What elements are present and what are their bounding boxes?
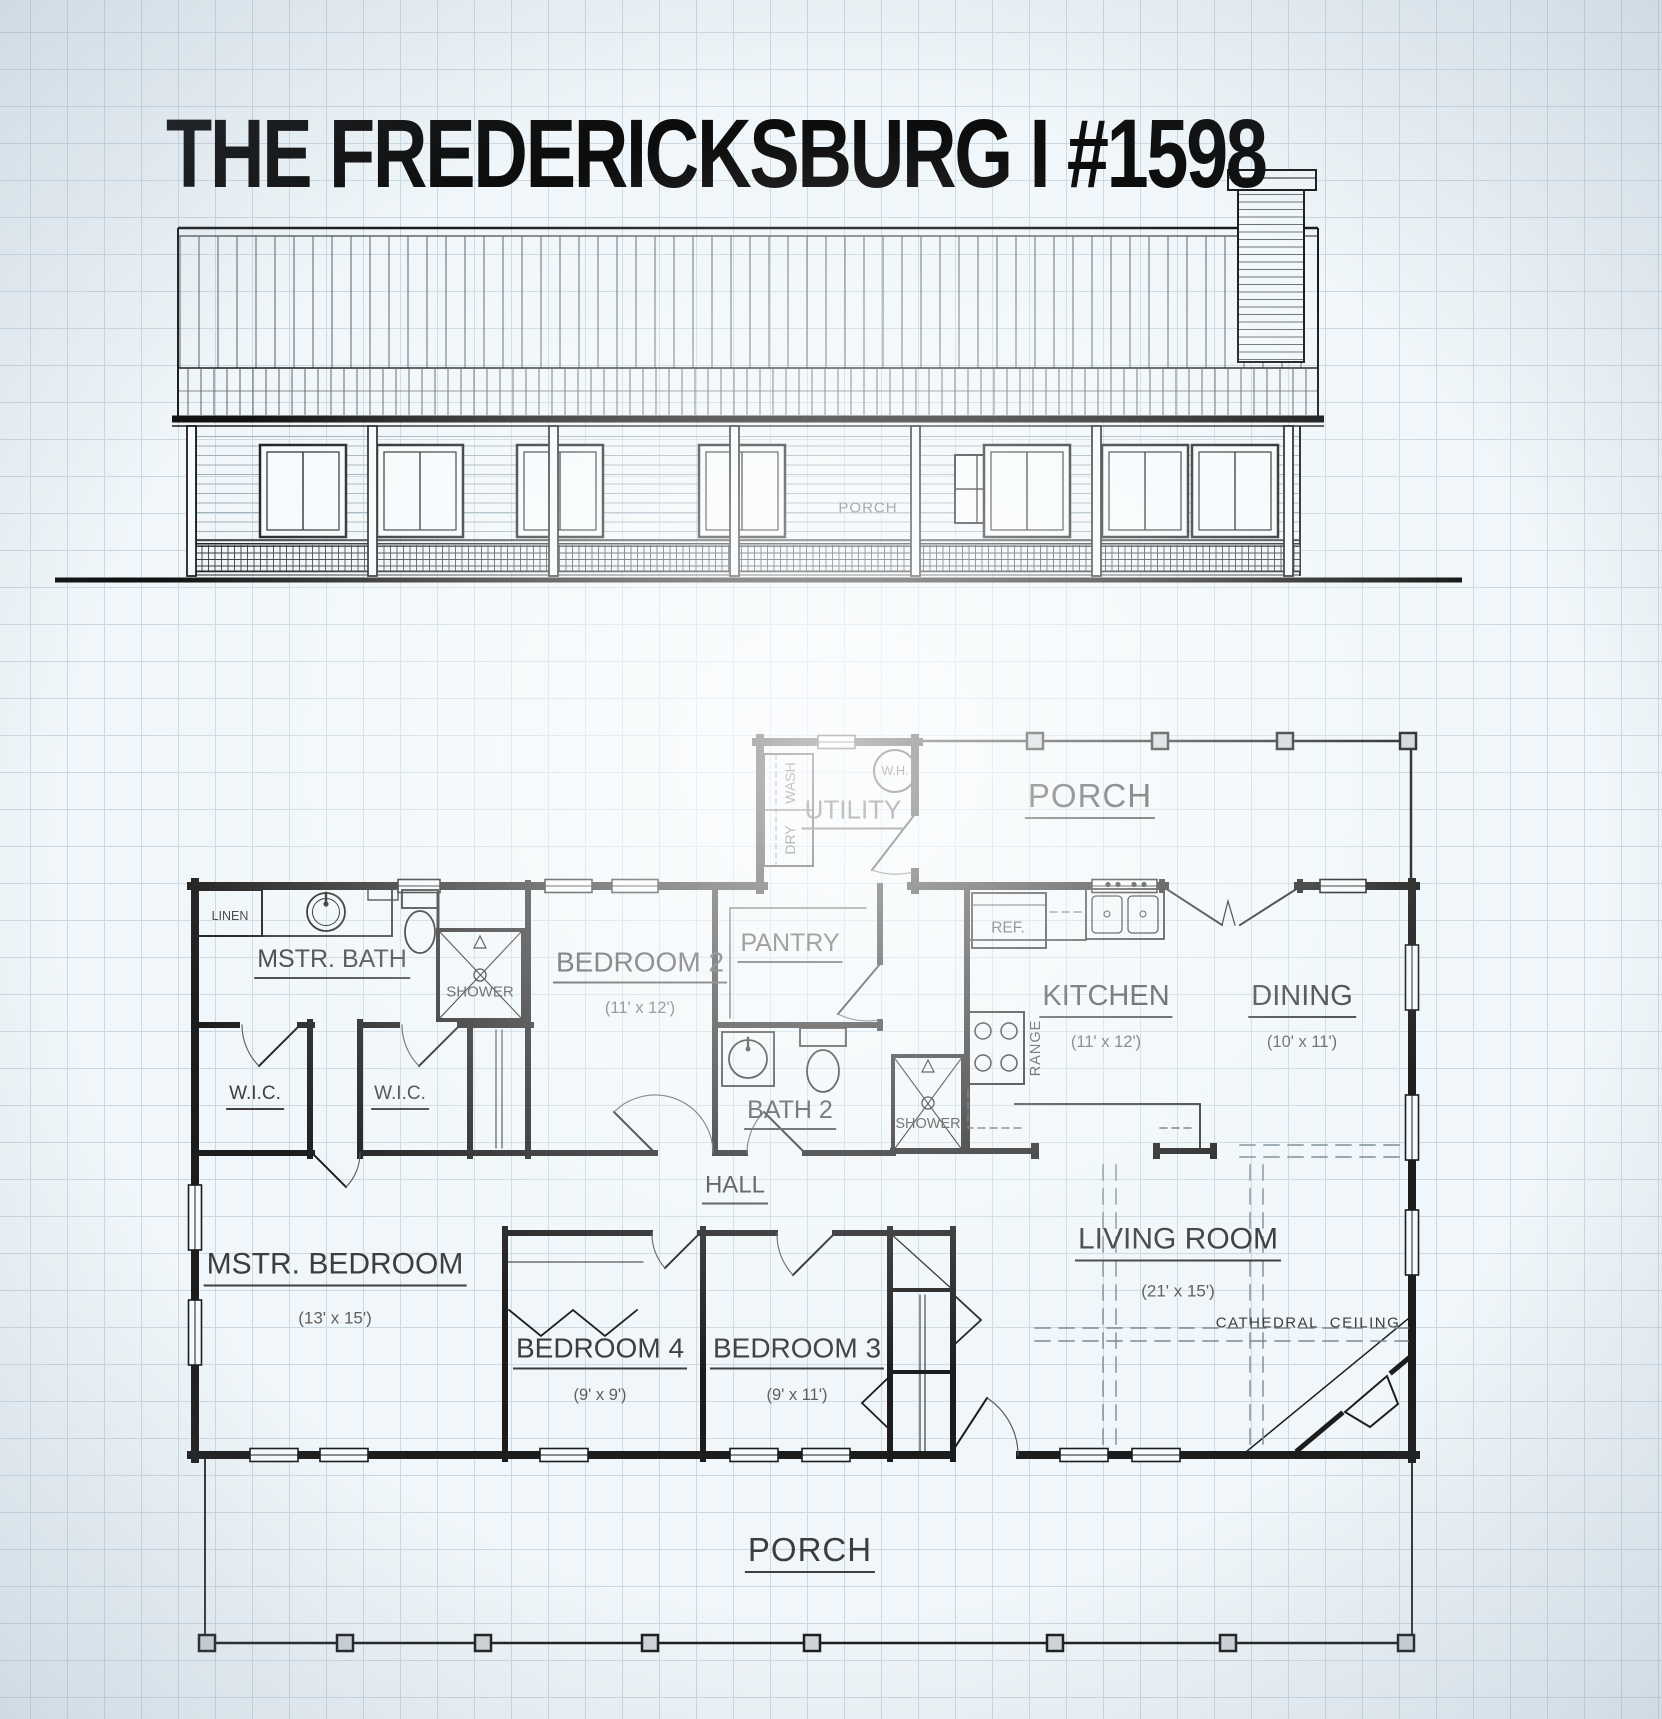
fixture-label-refrigerator: REF. [991,920,1025,936]
window [818,736,855,749]
bath2-sink [722,1032,774,1086]
elevation-drawing [55,170,1462,580]
closet-label-linen: LINEN [212,910,249,923]
elevation-windows [260,445,1278,537]
master-toilet [402,890,438,953]
fixture-label-shower-mstr: SHOWER [446,985,514,1000]
window [1406,945,1419,1010]
bedroom3-door [777,1233,835,1275]
window [1092,880,1157,893]
fixture-label-shower-bath2: SHOWER [895,1117,960,1132]
bedroom4-door [652,1233,700,1268]
closet-label-wic1: W.I.C. [226,1084,284,1110]
fixture-label-washer: WASH [783,762,797,803]
range [968,1012,1024,1084]
window-pair [699,445,785,537]
room-dims-living-room: (21' x 15') [1141,1283,1215,1300]
elevation-porch-label: PORCH [838,501,897,516]
window [540,1449,588,1462]
window [545,880,592,893]
window-pair [377,445,463,537]
window [320,1449,368,1462]
plan-title: THE FREDERICKSBURG I #1598 [166,98,1266,210]
window [730,1449,778,1462]
bath2-toilet [800,1028,846,1092]
pantry-shelves [730,908,866,1018]
window [802,1449,850,1462]
window [1320,880,1366,893]
window-pair [517,445,603,537]
room-dims-dining: (10' x 11') [1267,1034,1337,1051]
bath2-shower [893,1056,963,1151]
wic2-door [402,1025,460,1066]
master-vanity [262,888,398,936]
room-dims-bedroom3: (9' x 11') [766,1387,827,1404]
floor-plan [189,733,1419,1651]
room-label-bedroom3: BEDROOM 3 [710,1335,884,1370]
window [612,880,658,893]
porch-railing [196,540,1300,575]
cathedral-ceiling-lines [1035,1145,1408,1447]
elevation-roof [172,228,1324,426]
blueprint-drawing [0,0,1662,1719]
room-label-mstr-bath: MSTR. BATH [254,947,410,979]
closet-label-wic2: W.I.C. [371,1084,429,1110]
window [189,1185,202,1250]
corner-fireplace [1246,1318,1410,1452]
room-label-kitchen: KITCHEN [1039,982,1172,1018]
window-pair [1102,445,1188,537]
porch-bottom-label: PORCH [745,1533,875,1573]
window-pair [984,445,1070,537]
room-label-hall: HALL [702,1174,768,1205]
window [189,1300,202,1365]
room-dims-bedroom2: (11' x 12') [605,1000,675,1017]
blueprint-page: { "title": "THE FREDERICKSBURG I #1598",… [0,0,1662,1719]
window [1406,1210,1419,1275]
master-shower [438,930,523,1020]
window [1132,1449,1180,1462]
room-label-pantry: PANTRY [737,931,842,963]
window [1406,1095,1419,1160]
fixture-label-range: RANGE [1029,1020,1044,1077]
room-dims-bedroom4: (9' x 9') [573,1387,626,1404]
annotation-cathedral-ceiling: CATHEDRAL CEILING [1216,1316,1401,1331]
window-pair [1192,445,1278,537]
room-dims-mstr-bedroom: (13' x 15') [298,1310,372,1327]
top-porch-outline [915,733,1416,884]
room-label-utility: UTILITY [802,797,905,830]
pantry-door [838,964,880,1021]
front-door [950,1398,1018,1455]
bedroom4-closet-bifold [507,1262,643,1336]
room-label-mstr-bedroom: MSTR. BEDROOM [204,1250,467,1287]
room-label-bedroom4: BEDROOM 4 [513,1335,687,1370]
room-label-bath2: BATH 2 [744,1098,836,1130]
mstr-bedroom-door [312,1153,360,1187]
fixture-label-water-heater: W.H. [881,765,908,778]
room-label-bedroom2: BEDROOM 2 [553,949,727,984]
bedroom2-door [614,1095,713,1153]
window [1060,1449,1108,1462]
room-dims-kitchen: (11' x 12') [1071,1034,1141,1051]
bedroom2-closet [496,1030,502,1148]
window-pair [260,445,346,537]
fixture-label-dryer: DRY [783,825,797,854]
room-label-dining: DINING [1248,982,1356,1018]
porch-top-label: PORCH [1025,779,1155,819]
wic1-door [242,1025,300,1066]
window [250,1449,298,1462]
french-doors [1159,879,1303,925]
room-label-living-room: LIVING ROOM [1075,1225,1281,1262]
